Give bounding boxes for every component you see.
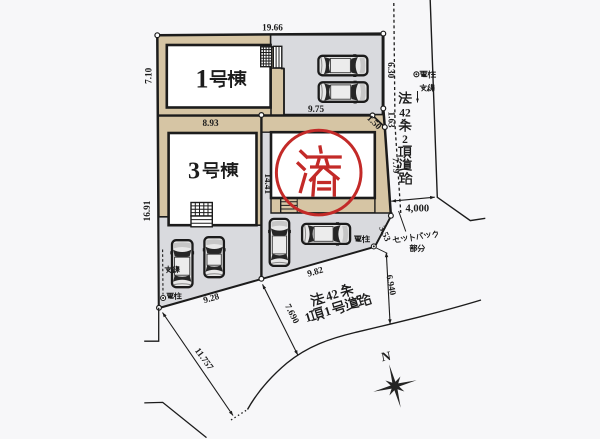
svg-text:3: 3 <box>188 159 200 185</box>
svg-text:4,000: 4,000 <box>405 204 429 215</box>
svg-text:8.93: 8.93 <box>202 118 218 128</box>
svg-text:1: 1 <box>196 65 209 94</box>
svg-text:14.41: 14.41 <box>263 173 273 194</box>
svg-text:7.10: 7.10 <box>144 67 154 83</box>
svg-text:16.91: 16.91 <box>142 200 152 221</box>
svg-text:19.66: 19.66 <box>262 23 283 33</box>
svg-text:1.63: 1.63 <box>386 112 396 128</box>
svg-text:2: 2 <box>402 134 408 146</box>
svg-text:42: 42 <box>399 107 411 119</box>
svg-text:9.75: 9.75 <box>308 104 324 114</box>
svg-text:6.30: 6.30 <box>386 62 396 78</box>
